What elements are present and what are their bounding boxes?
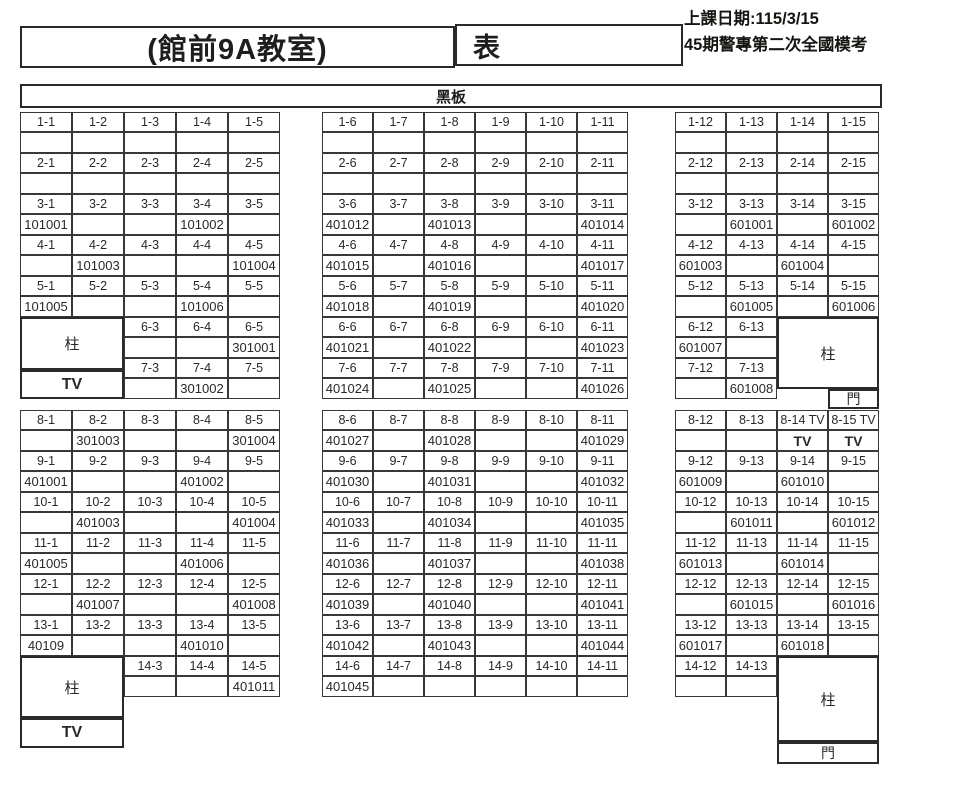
tv-left-top: TV [20, 370, 124, 399]
seat-empty-cell [124, 594, 176, 615]
seat-empty-cell [228, 214, 280, 235]
seat-label: 12-12 [675, 574, 726, 594]
seat-student-id: 401008 [228, 594, 280, 615]
seat-label: 11-15 [828, 533, 879, 553]
seat-label: 6-11 [577, 317, 628, 337]
seat-label: 9-9 [475, 451, 526, 471]
seat-student-id: 401034 [424, 512, 475, 533]
seat-empty-cell [176, 512, 228, 533]
seat-label: 10-11 [577, 492, 628, 512]
seat-label: 5-14 [777, 276, 828, 296]
seat-student-id: 601015 [726, 594, 777, 615]
seat-label: 11-12 [675, 533, 726, 553]
seat-empty-cell [373, 553, 424, 574]
seat-student-id: 401035 [577, 512, 628, 533]
seat-student-id: 601001 [726, 214, 777, 235]
seat-label: 1-6 [322, 112, 373, 132]
tv-left-bottom: TV [20, 718, 124, 748]
seat-label: 9-12 [675, 451, 726, 471]
seat-empty-cell [124, 471, 176, 492]
seat-label: 7-10 [526, 358, 577, 378]
seat-empty-cell [828, 471, 879, 492]
seat-empty-cell [373, 214, 424, 235]
seat-empty-cell [475, 594, 526, 615]
seat-label: 4-3 [124, 235, 176, 255]
seat-label: 8-6 [322, 410, 373, 430]
seat-student-id: 301002 [176, 378, 228, 399]
seat-label: 1-4 [176, 112, 228, 132]
seat-student-id: 601002 [828, 214, 879, 235]
seat-student-id: 601008 [726, 378, 777, 399]
seat-label: 10-5 [228, 492, 280, 512]
seat-empty-cell [475, 430, 526, 451]
seat-student-id: 601012 [828, 512, 879, 533]
seat-label: 2-8 [424, 153, 475, 173]
seat-label: 10-8 [424, 492, 475, 512]
seat-label: 7-11 [577, 358, 628, 378]
seat-label: 13-1 [20, 615, 72, 635]
seat-label: 11-13 [726, 533, 777, 553]
seat-label: 9-10 [526, 451, 577, 471]
seat-empty-cell [373, 594, 424, 615]
seat-label: 14-4 [176, 656, 228, 676]
seat-student-id: 401019 [424, 296, 475, 317]
seat-empty-cell [373, 255, 424, 276]
seat-label: 4-13 [726, 235, 777, 255]
exam-name: 45期警專第二次全國模考 [684, 32, 956, 58]
seat-label: 2-12 [675, 153, 726, 173]
seat-label: 6-8 [424, 317, 475, 337]
seat-label: 5-8 [424, 276, 475, 296]
seat-label: 13-11 [577, 615, 628, 635]
seat-label: 13-5 [228, 615, 280, 635]
seat-label: 2-3 [124, 153, 176, 173]
seat-label: 1-10 [526, 112, 577, 132]
seat-label: 9-11 [577, 451, 628, 471]
seat-label: 5-2 [72, 276, 124, 296]
seat-empty-cell [726, 553, 777, 574]
seat-label: 8-7 [373, 410, 424, 430]
seat-label: 13-7 [373, 615, 424, 635]
seat-label: 6-4 [176, 317, 228, 337]
seat-student-id: 401005 [20, 553, 72, 574]
seat-label: 9-2 [72, 451, 124, 471]
seat-empty-cell [675, 512, 726, 533]
seat-empty-cell [176, 430, 228, 451]
seat-student-id: 401012 [322, 214, 373, 235]
seat-grid-right-bottom: 8-128-138-14 TV8-15 TVTVTV9-129-139-149-… [675, 410, 879, 697]
seat-empty-cell [475, 337, 526, 358]
seat-student-id: 401014 [577, 214, 628, 235]
seat-student-id: 401011 [228, 676, 280, 697]
seat-empty-cell [726, 132, 777, 153]
seat-empty-cell [475, 296, 526, 317]
seat-empty-cell [675, 676, 726, 697]
seat-label: 13-10 [526, 615, 577, 635]
seat-empty-cell [176, 594, 228, 615]
seat-empty-cell [726, 471, 777, 492]
seat-empty-cell [72, 132, 124, 153]
seat-empty-cell [72, 471, 124, 492]
seat-empty-cell [675, 132, 726, 153]
seat-student-id: 401039 [322, 594, 373, 615]
seat-student-id: 401025 [424, 378, 475, 399]
seat-empty-cell [726, 255, 777, 276]
seat-empty-cell [526, 378, 577, 399]
seat-label: 12-2 [72, 574, 124, 594]
seat-label: 8-13 [726, 410, 777, 430]
seat-empty-cell [675, 378, 726, 399]
seat-label: 12-6 [322, 574, 373, 594]
seat-student-id: 601018 [777, 635, 828, 656]
seat-empty-cell [475, 214, 526, 235]
seat-empty-cell [675, 296, 726, 317]
seat-student-id: 401002 [176, 471, 228, 492]
seat-empty-cell [726, 430, 777, 451]
seat-student-id: 301003 [72, 430, 124, 451]
seat-empty-cell [373, 132, 424, 153]
seat-empty-cell [176, 173, 228, 194]
seat-student-id: 101004 [228, 255, 280, 276]
seat-empty-cell [475, 255, 526, 276]
seat-label: 4-10 [526, 235, 577, 255]
seat-student-id: 401021 [322, 337, 373, 358]
pillar-right-bottom: 柱 [777, 656, 879, 742]
seat-label: 4-11 [577, 235, 628, 255]
seat-label: 4-2 [72, 235, 124, 255]
seat-label: 10-12 [675, 492, 726, 512]
seat-label: 1-5 [228, 112, 280, 132]
seat-empty-cell [20, 430, 72, 451]
seat-empty-cell [176, 337, 228, 358]
seat-label: 3-1 [20, 194, 72, 214]
seat-label: 2-7 [373, 153, 424, 173]
seat-student-id: 101003 [72, 255, 124, 276]
seat-label: 13-2 [72, 615, 124, 635]
seat-empty-cell [475, 553, 526, 574]
seat-label: 6-12 [675, 317, 726, 337]
seat-student-id: 601011 [726, 512, 777, 533]
seat-label: 14-12 [675, 656, 726, 676]
seat-empty-cell [72, 296, 124, 317]
seat-student-id: 401029 [577, 430, 628, 451]
seat-student-id: 601004 [777, 255, 828, 276]
pillar-right-top: 柱 [777, 317, 879, 389]
seat-empty-cell [828, 255, 879, 276]
seat-label: 12-3 [124, 574, 176, 594]
seat-student-id: 401031 [424, 471, 475, 492]
seat-empty-cell [777, 296, 828, 317]
seat-empty-cell [72, 553, 124, 574]
seat-label: 14-10 [526, 656, 577, 676]
seat-label: 7-7 [373, 358, 424, 378]
seat-empty-cell [675, 430, 726, 451]
seat-label: 12-13 [726, 574, 777, 594]
seat-empty-cell [475, 132, 526, 153]
seat-label: 8-2 [72, 410, 124, 430]
seat-label: 2-9 [475, 153, 526, 173]
seat-label: 8-15 TV [828, 410, 879, 430]
seat-label: 9-6 [322, 451, 373, 471]
seat-empty-cell [526, 337, 577, 358]
seat-empty-cell [20, 173, 72, 194]
seat-empty-cell [828, 553, 879, 574]
seat-label: 12-11 [577, 574, 628, 594]
seat-empty-cell [72, 214, 124, 235]
seat-empty-cell [526, 553, 577, 574]
seat-label: 12-9 [475, 574, 526, 594]
seat-label: 8-4 [176, 410, 228, 430]
seat-empty-cell [124, 553, 176, 574]
seat-label: 8-11 [577, 410, 628, 430]
door-right-bottom: 門 [777, 742, 879, 764]
seat-label: 13-4 [176, 615, 228, 635]
seat-empty-cell [124, 173, 176, 194]
seat-student-id: 401020 [577, 296, 628, 317]
seat-label: 4-9 [475, 235, 526, 255]
seat-label: 14-7 [373, 656, 424, 676]
exam-info: 上課日期:115/3/15 45期警專第二次全國模考 [684, 6, 956, 59]
seat-label: 14-6 [322, 656, 373, 676]
seat-student-id: 101002 [176, 214, 228, 235]
seat-label: 5-6 [322, 276, 373, 296]
seat-label: 5-3 [124, 276, 176, 296]
seat-empty-cell [475, 512, 526, 533]
seat-label: 1-12 [675, 112, 726, 132]
seat-empty-cell [777, 214, 828, 235]
seat-empty-cell [526, 173, 577, 194]
seat-label: 10-1 [20, 492, 72, 512]
seat-grid-left-bottom: 8-18-28-38-48-53010033010049-19-29-39-49… [20, 410, 280, 697]
seat-label: 3-2 [72, 194, 124, 214]
seat-student-id: 301004 [228, 430, 280, 451]
seat-label: 1-13 [726, 112, 777, 132]
seat-label: 12-10 [526, 574, 577, 594]
seat-label: 11-6 [322, 533, 373, 553]
seat-empty-cell [475, 635, 526, 656]
seat-label: 10-3 [124, 492, 176, 512]
seat-empty-cell [20, 594, 72, 615]
seat-label: 7-4 [176, 358, 228, 378]
seat-student-id: 401041 [577, 594, 628, 615]
seat-student-id: 601013 [675, 553, 726, 574]
seat-label: 1-8 [424, 112, 475, 132]
seat-empty-cell [675, 594, 726, 615]
seat-empty-cell [176, 676, 228, 697]
seat-empty-cell [577, 173, 628, 194]
seat-label: 2-1 [20, 153, 72, 173]
seat-label: 5-4 [176, 276, 228, 296]
seat-empty-cell [228, 635, 280, 656]
seat-label: 1-14 [777, 112, 828, 132]
seat-label: 13-3 [124, 615, 176, 635]
seat-label: 3-13 [726, 194, 777, 214]
seat-label: 2-2 [72, 153, 124, 173]
seat-empty-cell [124, 255, 176, 276]
seat-empty-cell [526, 296, 577, 317]
seat-label: 13-8 [424, 615, 475, 635]
seat-label: 5-10 [526, 276, 577, 296]
seat-empty-cell [124, 337, 176, 358]
seat-student-id: 401004 [228, 512, 280, 533]
seat-student-id: 401023 [577, 337, 628, 358]
seat-label: 5-1 [20, 276, 72, 296]
seat-label: 1-2 [72, 112, 124, 132]
seat-empty-cell [526, 594, 577, 615]
seat-student-id: 301001 [228, 337, 280, 358]
seat-empty-cell [577, 132, 628, 153]
seat-student-id: 401043 [424, 635, 475, 656]
seat-student-id: 40109 [20, 635, 72, 656]
seat-label: 12-7 [373, 574, 424, 594]
seat-label: 3-12 [675, 194, 726, 214]
seat-student-id: 401045 [322, 676, 373, 697]
pillar-left-bottom: 柱 [20, 656, 124, 718]
seat-empty-cell [373, 378, 424, 399]
seat-student-id: TV [828, 430, 879, 451]
seat-student-id: 401040 [424, 594, 475, 615]
seat-student-id: 401032 [577, 471, 628, 492]
seat-label: 9-5 [228, 451, 280, 471]
seat-empty-cell [828, 635, 879, 656]
seat-label: 11-4 [176, 533, 228, 553]
seat-label: 8-14 TV [777, 410, 828, 430]
seat-label: 13-6 [322, 615, 373, 635]
room-title: (館前9A教室) [20, 26, 455, 68]
seat-empty-cell [72, 173, 124, 194]
seat-label: 11-5 [228, 533, 280, 553]
seat-student-id: 601010 [777, 471, 828, 492]
seat-student-id: 401036 [322, 553, 373, 574]
seat-empty-cell [475, 173, 526, 194]
seat-empty-cell [228, 471, 280, 492]
seat-empty-cell [228, 132, 280, 153]
seat-student-id: TV [777, 430, 828, 451]
seat-student-id: 101005 [20, 296, 72, 317]
seat-empty-cell [526, 255, 577, 276]
seat-empty-cell [373, 512, 424, 533]
seat-label: 4-6 [322, 235, 373, 255]
seat-student-id: 401024 [322, 378, 373, 399]
seat-empty-cell [828, 173, 879, 194]
seat-empty-cell [124, 676, 176, 697]
seat-label: 10-13 [726, 492, 777, 512]
seat-label: 14-5 [228, 656, 280, 676]
seat-label: 11-1 [20, 533, 72, 553]
seat-label: 1-7 [373, 112, 424, 132]
seat-label: 11-3 [124, 533, 176, 553]
seat-student-id: 101006 [176, 296, 228, 317]
seat-empty-cell [124, 214, 176, 235]
seat-empty-cell [72, 635, 124, 656]
seat-empty-cell [176, 255, 228, 276]
seat-label: 9-1 [20, 451, 72, 471]
seat-label: 3-5 [228, 194, 280, 214]
seat-label: 6-13 [726, 317, 777, 337]
door-right-top: 門 [828, 389, 879, 409]
seat-student-id: 601005 [726, 296, 777, 317]
seat-label: 14-11 [577, 656, 628, 676]
seat-label: 4-7 [373, 235, 424, 255]
seat-label: 2-5 [228, 153, 280, 173]
seating-chart-page: (館前9A教室) 表 上課日期:115/3/15 45期警專第二次全國模考 黑板… [0, 0, 962, 790]
seat-student-id: 601007 [675, 337, 726, 358]
blackboard-banner: 黑板 [20, 84, 882, 108]
seat-label: 6-10 [526, 317, 577, 337]
seat-empty-cell [726, 337, 777, 358]
seat-empty-cell [124, 430, 176, 451]
seat-label: 8-5 [228, 410, 280, 430]
seat-label: 12-14 [777, 574, 828, 594]
seat-label: 5-9 [475, 276, 526, 296]
seat-label: 4-12 [675, 235, 726, 255]
seat-empty-cell [675, 214, 726, 235]
seat-empty-cell [124, 132, 176, 153]
seat-empty-cell [20, 512, 72, 533]
seat-student-id: 101001 [20, 214, 72, 235]
seat-empty-cell [373, 471, 424, 492]
seat-empty-cell [124, 296, 176, 317]
seat-label: 12-5 [228, 574, 280, 594]
seat-label: 11-11 [577, 533, 628, 553]
seat-student-id: 401015 [322, 255, 373, 276]
seat-label: 3-7 [373, 194, 424, 214]
seat-grid-middle-top: 1-61-71-81-91-101-112-62-72-82-92-102-11… [322, 112, 628, 399]
seat-label: 7-12 [675, 358, 726, 378]
seat-label: 7-8 [424, 358, 475, 378]
seat-label: 5-12 [675, 276, 726, 296]
seat-student-id: 601009 [675, 471, 726, 492]
seat-label: 13-14 [777, 615, 828, 635]
seat-label: 1-15 [828, 112, 879, 132]
seat-empty-cell [526, 635, 577, 656]
seat-empty-cell [228, 553, 280, 574]
seat-empty-cell [228, 296, 280, 317]
seat-label: 1-11 [577, 112, 628, 132]
seat-student-id: 601003 [675, 255, 726, 276]
seat-label: 2-10 [526, 153, 577, 173]
seat-empty-cell [124, 378, 176, 399]
seat-label: 12-4 [176, 574, 228, 594]
seat-empty-cell [322, 132, 373, 153]
seat-label: 8-3 [124, 410, 176, 430]
seat-empty-cell [424, 132, 475, 153]
seat-label: 2-11 [577, 153, 628, 173]
seat-empty-cell [475, 378, 526, 399]
seat-label: 1-3 [124, 112, 176, 132]
seat-label: 10-15 [828, 492, 879, 512]
pillar-left-top: 柱 [20, 317, 124, 370]
seat-label: 13-15 [828, 615, 879, 635]
seat-empty-cell [424, 173, 475, 194]
seat-label: 7-3 [124, 358, 176, 378]
seat-label: 11-14 [777, 533, 828, 553]
seat-label: 12-15 [828, 574, 879, 594]
seat-label: 10-4 [176, 492, 228, 512]
seat-empty-cell [373, 337, 424, 358]
seat-label: 10-9 [475, 492, 526, 512]
seat-empty-cell [777, 173, 828, 194]
seat-empty-cell [726, 173, 777, 194]
seat-label: 3-10 [526, 194, 577, 214]
seat-label: 9-8 [424, 451, 475, 471]
seat-student-id: 601006 [828, 296, 879, 317]
seat-label: 2-4 [176, 153, 228, 173]
seat-label: 9-3 [124, 451, 176, 471]
seat-empty-cell [726, 676, 777, 697]
seat-label: 7-9 [475, 358, 526, 378]
seat-label: 2-6 [322, 153, 373, 173]
